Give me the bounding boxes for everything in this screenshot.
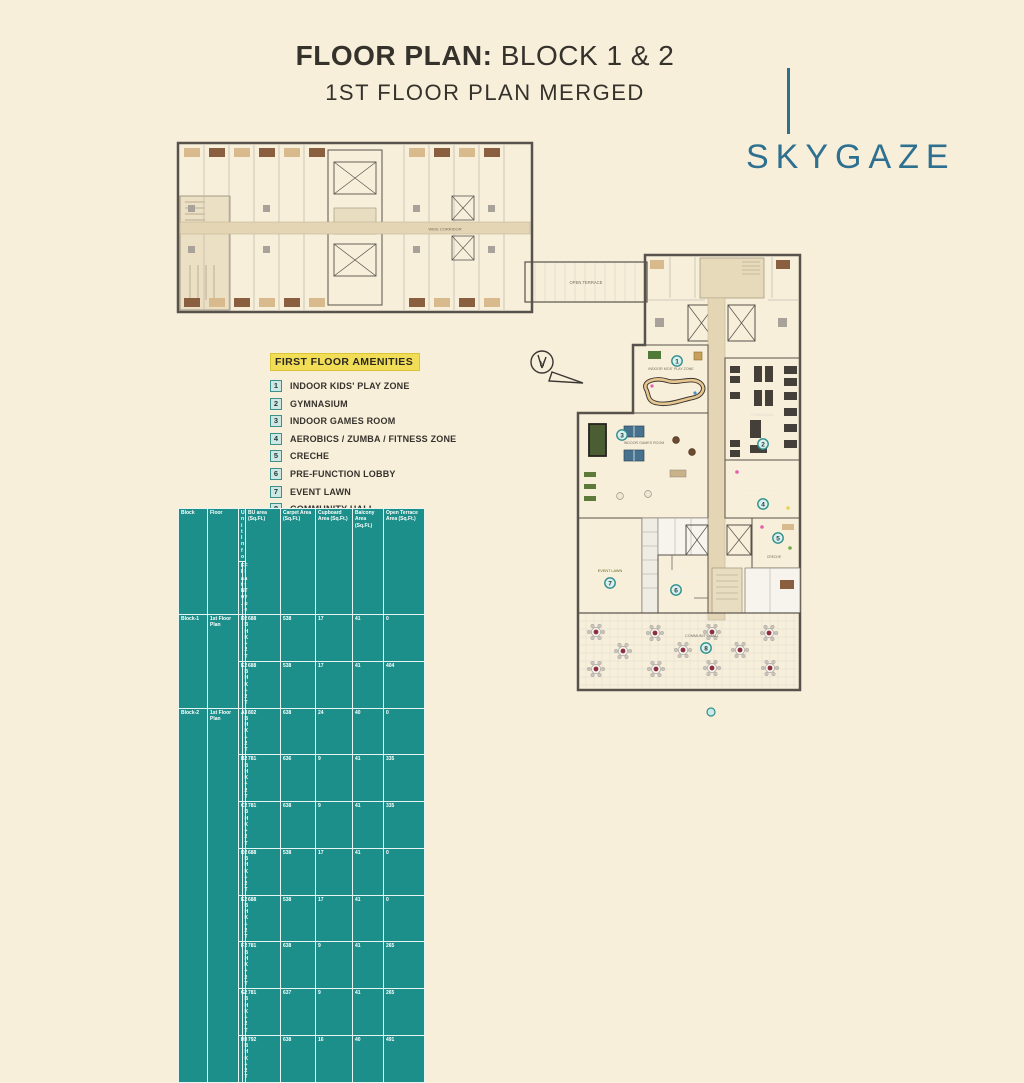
table-cell: 781 [246,755,281,802]
badge-6: 6 [671,585,681,595]
table-cell: 781 [246,802,281,849]
games-zone-label: INDOOR GAMES ROOM [624,441,665,445]
zone-indoor-games: INDOOR GAMES ROOM [578,413,708,518]
table-cell: 17 [316,895,353,942]
zone-prefunction-lobby: PRE-FUNCTION LOBBY [658,555,708,613]
amenities-legend: FIRST FLOOR AMENITIES 1INDOOR KIDS' PLAY… [270,352,470,521]
table-cell: 40 [353,708,384,755]
area-statement-table: BlockFloorUnit InfoBU area (Sq.Ft.)Carpe… [178,508,425,742]
zone-kids-play: INDOOR KIDS' PLAY ZONE [633,345,708,413]
block1-2-residential-slab: WIDE CORRIDOR [178,143,532,312]
amenities-list: 1INDOOR KIDS' PLAY ZONE2GYMNASIUM3INDOOR… [270,380,470,515]
badge-5: 5 [773,533,783,543]
table-cell: 9 [316,942,353,989]
table-cell: 335 [384,755,425,802]
table-cell: 41 [353,895,384,942]
table-floor-cell: 1st Floor Plan [208,708,239,1082]
amenity-label: GYMNASIUM [290,399,348,409]
lawn-zone-label: EVENT LAWN [598,569,623,573]
amenity-label: INDOOR KIDS' PLAY ZONE [290,381,410,391]
site-marker-dot [707,708,715,716]
lower-right-rooms [745,568,800,613]
table-cell: 0 [384,895,425,942]
hall-zone-label: COMMUNITY HALL [685,634,719,638]
table-cell: 9 [316,802,353,849]
lift-shafts-slab [334,162,376,276]
table-cell: 638 [281,942,316,989]
table-cell: 17 [316,848,353,895]
lobby-zone-label: PRE-FUNCTION LOBBY [664,575,703,579]
amenity-number: 5 [270,450,282,462]
badge-8: 8 [701,643,711,653]
amenity-wing: INDOOR KIDS' PLAY ZONE [578,255,800,690]
table-cell: 335 [384,802,425,849]
table-cell: 16 [316,1035,353,1082]
corridor-horizontal [180,222,530,234]
amenity-number: 2 [270,398,282,410]
svg-text:7: 7 [608,580,612,587]
badge-7: 7 [605,578,615,588]
service-rooms [642,518,708,613]
gym-zone-label: GYMNASIUM [751,413,773,417]
table-cell: 9 [316,755,353,802]
table-cell: 41 [353,942,384,989]
table-cell: 638 [281,708,316,755]
north-compass-icon: N [531,351,583,383]
floor-plan-drawing: WIDE CORRIDOR OPEN TERRACE [0,0,1024,768]
amenity-label: PRE-FUNCTION LOBBY [290,469,396,479]
table-cell: 0 [384,615,425,662]
table-cell: 0 [384,848,425,895]
table-cell: 688 [246,615,281,662]
kids-zone-label: INDOOR KIDS' PLAY ZONE [648,367,694,371]
svg-text:2: 2 [761,441,765,448]
terrace-label: OPEN TERRACE [570,280,603,285]
table-cell: 41 [353,615,384,662]
table-cell: 17 [316,615,353,662]
table-cell: 636 [281,755,316,802]
svg-text:5: 5 [776,535,780,542]
table-cell: 792 [246,1035,281,1082]
badge-2: 2 [758,439,768,449]
svg-text:8: 8 [704,645,708,652]
svg-text:6: 6 [674,587,678,594]
table-cell: 41 [353,802,384,849]
table-floor-cell: 1st Floor Plan [208,615,239,709]
games-cafe-tables [617,437,696,500]
table-cell: 0 [384,708,425,755]
svg-text:N: N [539,361,544,368]
table-cell: 538 [281,661,316,708]
table-cell: 24 [316,708,353,755]
table-header-cell: Unit Info [239,509,246,562]
table-cell: 781 [246,989,281,1036]
billiards-table [589,424,606,456]
amenity-label: EVENT LAWN [290,487,351,497]
amenity-item: 4AEROBICS / ZUMBA / FITNESS ZONE [270,433,470,445]
table-cell: 688 [246,661,281,708]
badge-1: 1 [672,356,682,366]
table-subheader-cell: Flat No. [239,562,243,615]
table-header-cell: Block [179,509,208,615]
amenity-number: 3 [270,415,282,427]
table-cell: 41 [353,989,384,1036]
corridor-label: WIDE CORRIDOR [428,227,461,232]
games-benches [584,472,596,501]
table-cell: 688 [246,848,281,895]
amenity-number: 7 [270,486,282,498]
amenity-number: 4 [270,433,282,445]
area-table: BlockFloorUnit InfoBU area (Sq.Ft.)Carpe… [178,508,425,1083]
table-cell: 17 [316,661,353,708]
stair-block-right [712,568,742,613]
table-cell: 781 [246,942,281,989]
badge-4: 4 [758,499,768,509]
table-cell: 265 [384,942,425,989]
table-header-cell: BU area (Sq.Ft.) [246,509,281,615]
amenity-item: 2GYMNASIUM [270,398,470,410]
amenity-number: 6 [270,468,282,480]
table-cell: 9 [316,989,353,1036]
table-block-cell: Block-1 [179,615,208,709]
svg-text:1: 1 [675,358,679,365]
table-cell: 638 [281,1035,316,1082]
table-header-cell: Carpet Area (Sq.Ft.) [281,509,316,615]
amenity-item: 3INDOOR GAMES ROOM [270,415,470,427]
table-cell: 637 [281,989,316,1036]
zone-community-hall: COMMUNITY HALL [578,613,800,690]
open-terrace-connector: OPEN TERRACE [525,262,647,302]
table-cell: 538 [281,848,316,895]
entrance-lobby [700,258,764,298]
svg-text:3: 3 [620,432,624,439]
table-cell: 802 [246,708,281,755]
table-header-cell: Cupboard Area (Sq.Ft.) [316,509,353,615]
amenity-number: 1 [270,380,282,392]
amenity-label: CRECHE [290,451,329,461]
amenity-item: 1INDOOR KIDS' PLAY ZONE [270,380,470,392]
table-cell: 404 [384,661,425,708]
table-cell: 538 [281,615,316,662]
table-cell: 265 [384,989,425,1036]
svg-text:4: 4 [761,501,765,508]
amenity-item: 7EVENT LAWN [270,486,470,498]
amenity-item: 5CRECHE [270,450,470,462]
table-block-cell: Block-2 [179,708,208,1082]
table-header-cell: Floor [208,509,239,615]
stair-block-left [180,196,230,310]
table-cell: 41 [353,755,384,802]
table-cell: 538 [281,895,316,942]
amenity-label: AEROBICS / ZUMBA / FITNESS ZONE [290,434,456,444]
page: FLOOR PLAN: BLOCK 1 & 2 1ST FLOOR PLAN M… [0,0,1024,768]
table-cell: 638 [281,802,316,849]
table-header-cell: Open Terrace Area (Sq.Ft.) [384,509,425,615]
amenities-heading: FIRST FLOOR AMENITIES [270,353,420,371]
badge-3: 3 [617,430,627,440]
amenity-item: 6PRE-FUNCTION LOBBY [270,468,470,480]
amenity-label: INDOOR GAMES ROOM [290,416,395,426]
table-cell: 491 [384,1035,425,1082]
table-header-cell: Balcony Area (Sq.Ft.) [353,509,384,615]
zone-event-lawn: EVENT LAWN [578,518,642,613]
aerobics-zone-label: AEROBICS / ZUMBA [745,489,780,493]
table-cell: 41 [353,848,384,895]
table-cell: 40 [353,1035,384,1082]
table-cell: 688 [246,895,281,942]
table-cell: 41 [353,661,384,708]
creche-zone-label: CRECHE [767,555,782,559]
